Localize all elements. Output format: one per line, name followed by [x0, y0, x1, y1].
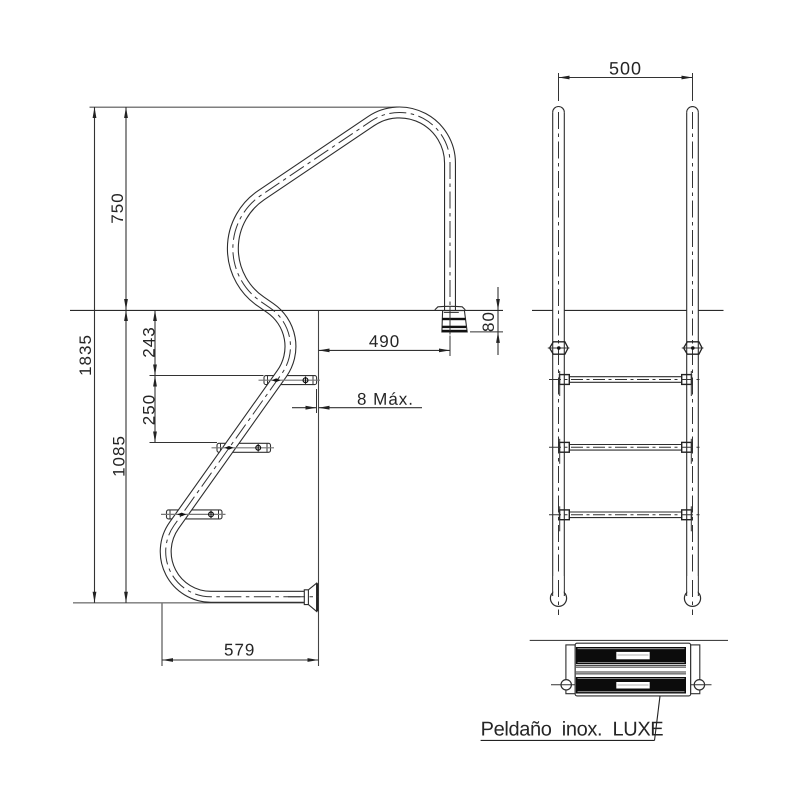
svg-text:579: 579: [224, 640, 255, 659]
svg-text:243: 243: [140, 326, 159, 357]
svg-text:490: 490: [369, 332, 400, 351]
svg-text:80: 80: [479, 311, 498, 332]
svg-text:1085: 1085: [109, 435, 128, 477]
svg-text:500: 500: [609, 58, 642, 78]
svg-text:8 Máx.: 8 Máx.: [357, 390, 414, 409]
svg-text:Peldaño inox. LUXE: Peldaño inox. LUXE: [481, 718, 664, 740]
svg-text:250: 250: [140, 394, 159, 425]
svg-text:750: 750: [108, 192, 127, 223]
svg-text:1835: 1835: [76, 334, 95, 376]
